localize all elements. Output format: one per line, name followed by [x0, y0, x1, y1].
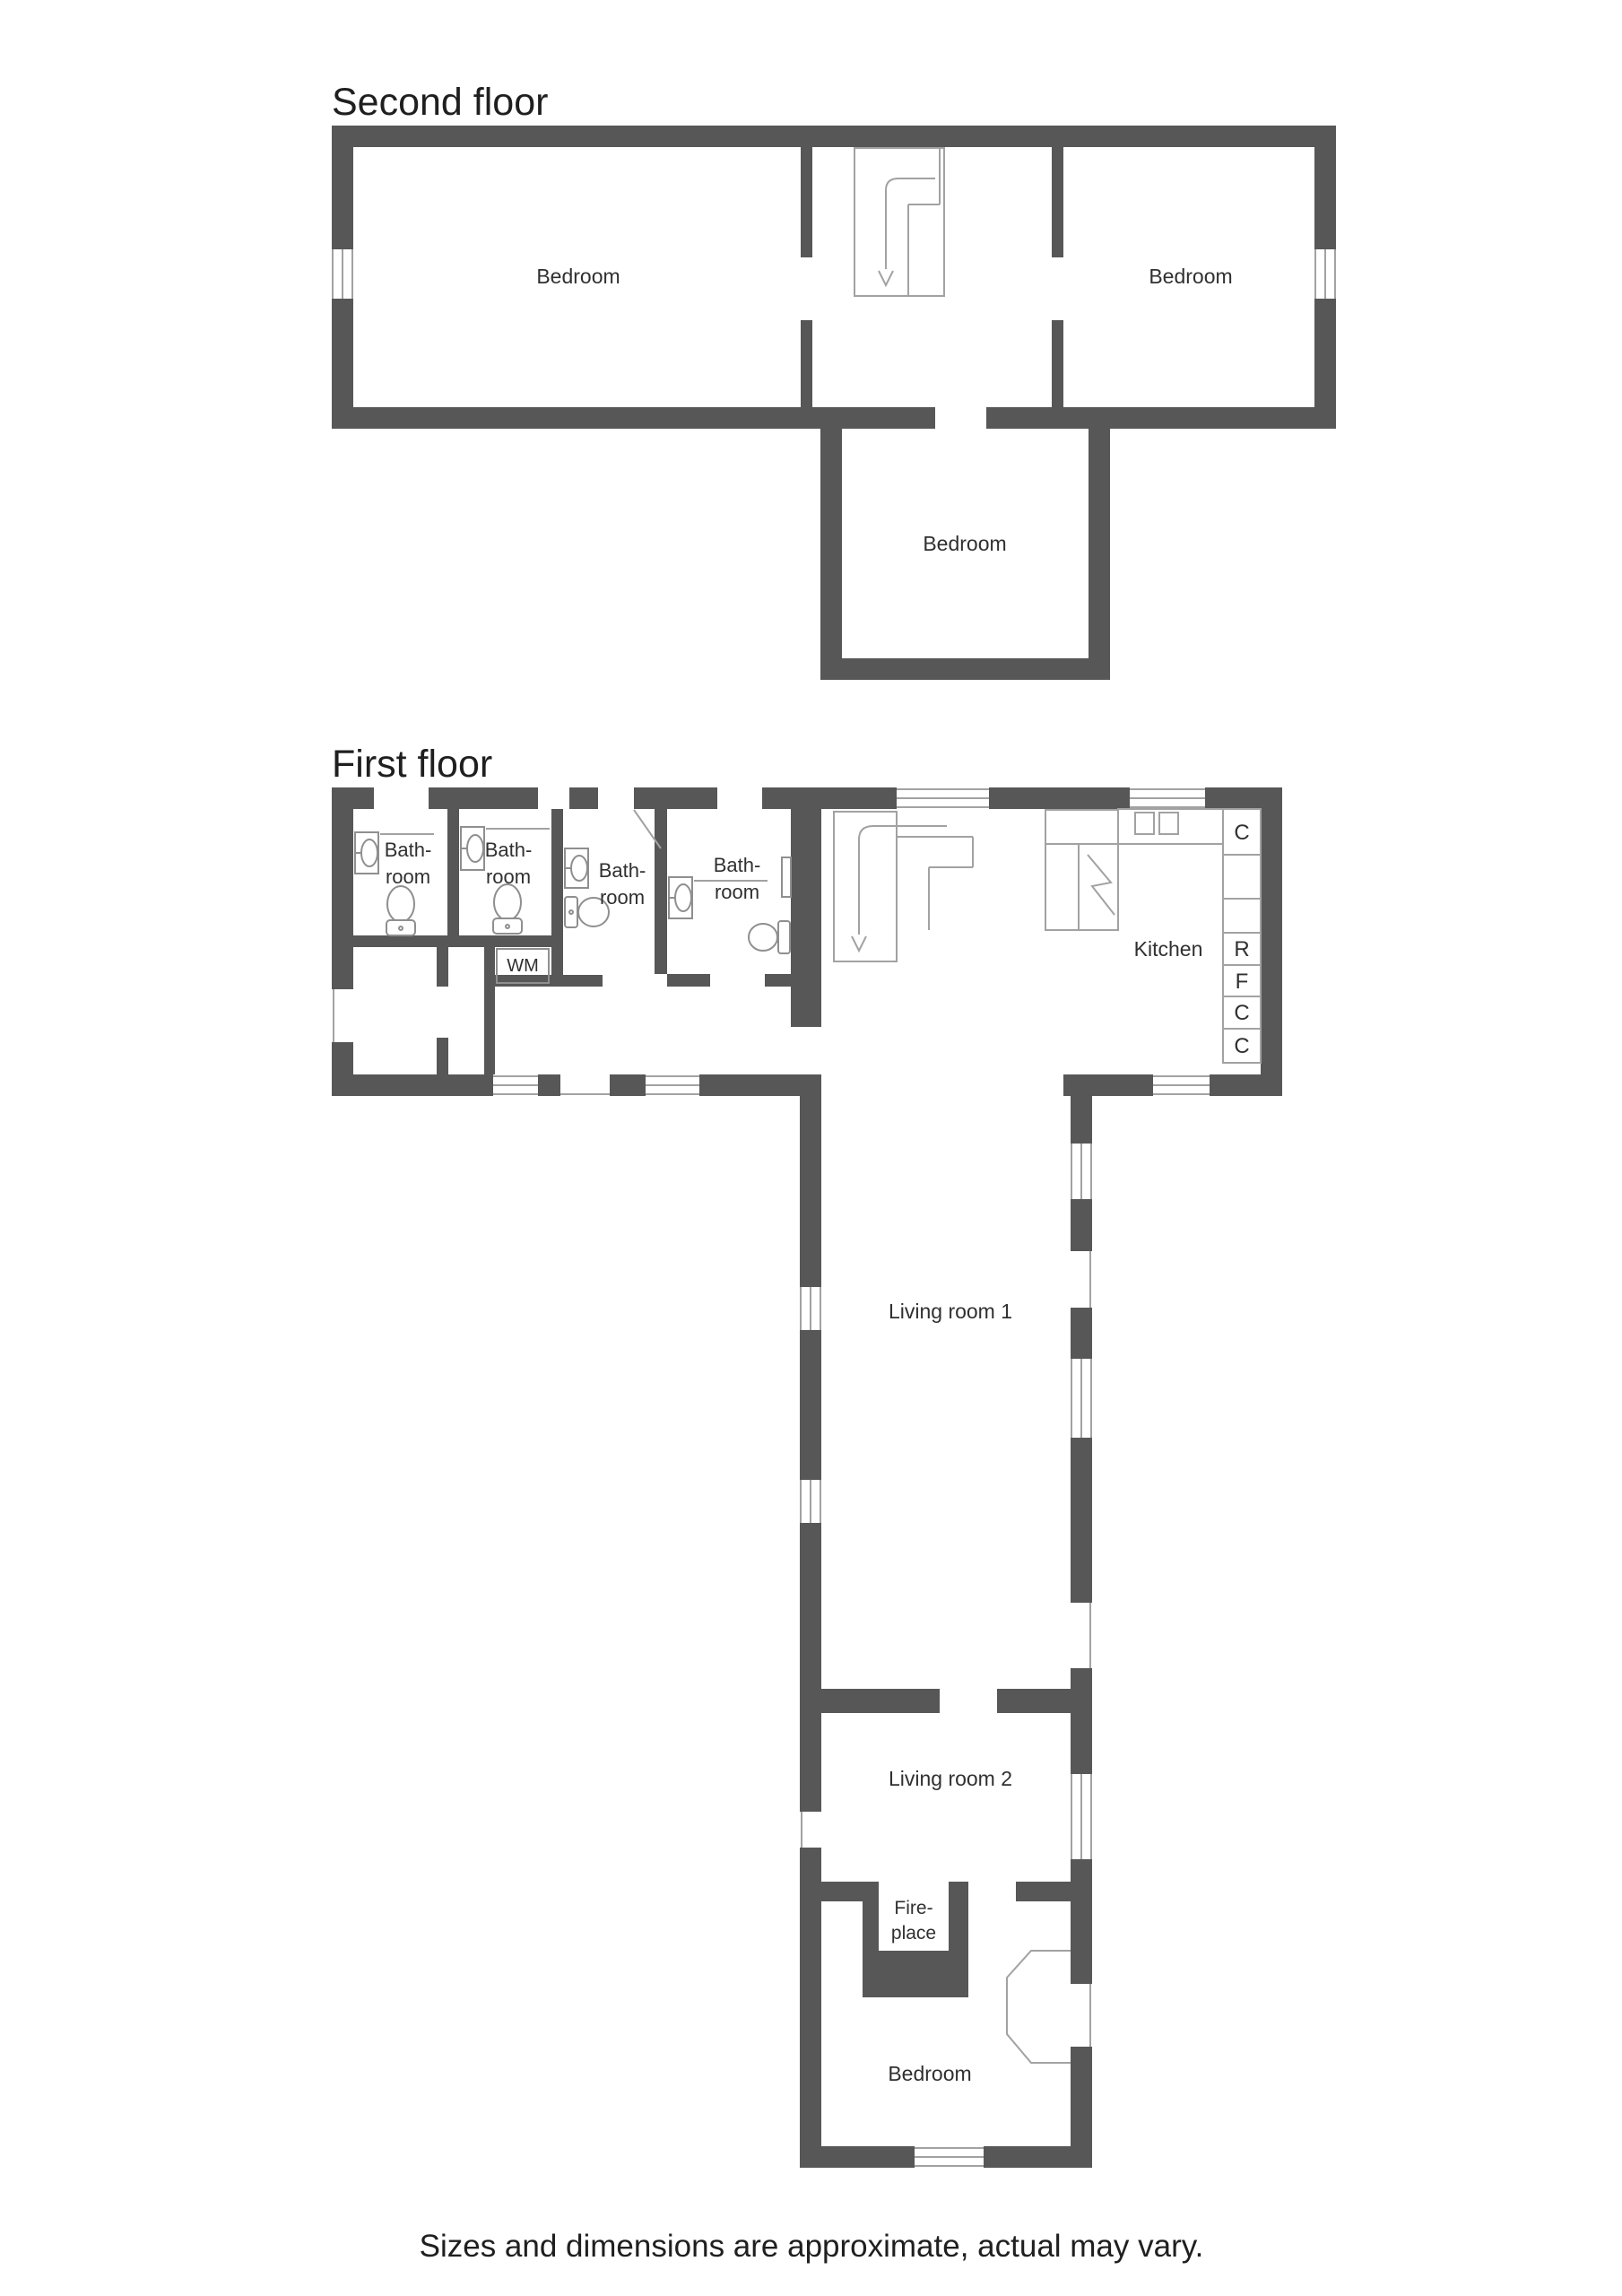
winrect: [333, 989, 352, 1042]
wall: [655, 809, 667, 974]
wall: [800, 1074, 821, 1287]
window-bottom-b: [646, 1075, 699, 1095]
wall: [667, 974, 710, 987]
toilet-icon: [387, 886, 414, 922]
window-living1-right-a: [1071, 1144, 1092, 1199]
tl: [1223, 899, 1261, 933]
room-label-bathroom-2: room: [486, 865, 531, 888]
room-label-bathroom-1: Bath-: [385, 839, 432, 861]
wall: [1052, 320, 1063, 407]
wall: [1071, 1859, 1092, 1984]
winrect: [1071, 1984, 1091, 2047]
label-fireplace: Fire-: [894, 1898, 932, 1918]
hob-burner-icon: [1135, 813, 1154, 834]
kitchen-fittings: C R F C C: [1045, 809, 1261, 1063]
wall: [332, 1074, 493, 1096]
wall: [332, 126, 1336, 147]
wall: [610, 1074, 646, 1096]
tl: [886, 178, 935, 269]
wall: [989, 787, 1130, 809]
opening-living1-right-a: [1071, 1251, 1091, 1308]
wall: [1071, 1199, 1092, 1251]
first-floor-walls: [332, 787, 1282, 2168]
wall: [1052, 147, 1063, 257]
wall: [634, 787, 717, 809]
stairs-icon-first-floor: [834, 812, 973, 961]
kitchen-unit: [1045, 810, 1118, 930]
wall: [801, 320, 812, 407]
window-living1-left-a: [800, 1287, 821, 1330]
room-label-bathroom-2: Bath-: [485, 839, 533, 861]
winrect: [1071, 1603, 1091, 1668]
tiled-stove-bay: [1007, 1951, 1071, 2063]
wall: [332, 407, 935, 429]
toilet-icon: [565, 897, 577, 927]
appliance-letter-freezer: F: [1236, 970, 1249, 994]
tl: [879, 271, 893, 285]
wall: [447, 809, 459, 935]
floor-plan-page: Second floor Bedroom Bedroom: [0, 0, 1622, 2296]
wall: [765, 974, 791, 987]
room-label-living-room-2: Living room 2: [889, 1767, 1012, 1790]
wall: [332, 787, 374, 809]
opening-living2-left: [801, 1812, 820, 1848]
wall: [984, 2146, 1092, 2168]
room-label-bathroom-4: Bath-: [714, 854, 761, 876]
room-label-living-room-1: Living room 1: [889, 1300, 1012, 1323]
room-label-bedroom-first-floor: Bedroom: [888, 2062, 971, 2085]
room-label-kitchen: Kitchen: [1134, 937, 1203, 961]
wall: [1071, 1308, 1092, 1359]
label-fireplace: place: [891, 1923, 936, 1944]
room-label-bedroom-left: Bedroom: [536, 265, 620, 288]
wall: [484, 947, 495, 1074]
wall: [332, 147, 353, 249]
appliance-letter-refrigerator: R: [1234, 937, 1249, 961]
window-living1-left-b: [800, 1480, 821, 1523]
wall: [821, 1882, 863, 1901]
wall: [800, 1848, 821, 2146]
label-washing-machine: WM: [507, 956, 539, 976]
toilet-icon: [778, 921, 790, 953]
wall: [820, 658, 1110, 680]
bath-icon: [782, 857, 791, 897]
wall: [437, 1038, 448, 1074]
room-label-bathroom-4: room: [715, 881, 759, 903]
winrect: [801, 1812, 820, 1848]
fx: [386, 920, 415, 935]
window-bedroom-bottom: [915, 2147, 984, 2167]
wall: [1071, 1668, 1092, 1774]
second-floor-window-left: [332, 249, 353, 299]
room-label-bedroom-right: Bedroom: [1149, 265, 1232, 288]
wall: [1063, 1074, 1153, 1096]
wall: [800, 2146, 915, 2168]
toilet-icon: [494, 884, 521, 920]
wall: [1016, 1882, 1071, 1901]
kitchen-counter: [1118, 809, 1223, 844]
wall: [551, 809, 563, 935]
wall: [1089, 429, 1110, 658]
window-living2-right: [1071, 1774, 1092, 1859]
fx: [749, 924, 777, 951]
appliance-letter-cupboard: C: [1234, 1034, 1249, 1058]
wall: [820, 429, 842, 658]
window-stair-hall: [897, 788, 989, 808]
window-bottom-a: [493, 1075, 538, 1095]
wall: [353, 935, 563, 947]
window-living1-right-b: [1071, 1359, 1092, 1438]
fx: [493, 918, 522, 934]
first-floor-title: First floor: [332, 743, 492, 786]
room-label-bedroom-lower: Bedroom: [923, 532, 1006, 555]
opening-bottom: [560, 1075, 610, 1095]
entrance-opening-left: [333, 989, 352, 1042]
tl: [859, 826, 947, 935]
wall: [1071, 1096, 1092, 1144]
tl: [852, 936, 866, 951]
wall: [800, 1523, 821, 1812]
tl: [1007, 1951, 1071, 2063]
opening-bedroom-right: [1071, 1984, 1091, 2047]
tl: [1223, 855, 1261, 899]
second-floor-walls: [332, 126, 1336, 680]
wall: [1071, 1438, 1092, 1603]
wall: [997, 1689, 1071, 1713]
window-kitchen-bottom: [1153, 1075, 1210, 1095]
wall: [538, 1074, 560, 1096]
floor-plan-drawing: Second floor Bedroom Bedroom: [0, 0, 1622, 2296]
wall: [986, 407, 1336, 429]
wall: [1314, 147, 1336, 249]
room-label-bathroom-1: room: [386, 865, 430, 888]
wall: [1314, 299, 1336, 407]
tl: [854, 148, 944, 296]
wall: [1071, 2047, 1092, 2146]
disclaimer-text: Sizes and dimensions are approximate, ac…: [420, 2229, 1204, 2264]
wall: [332, 299, 353, 407]
wall: [1261, 809, 1282, 1096]
opening-living1-right-b: [1071, 1603, 1091, 1668]
appliance-letter-cupboard: C: [1234, 821, 1249, 845]
room-label-bathroom-3: room: [600, 886, 645, 909]
wall: [429, 787, 538, 809]
appliance-letter-cupboard: C: [1234, 1001, 1249, 1025]
room-label-bathroom-3: Bath-: [599, 859, 646, 882]
wall: [1205, 787, 1282, 809]
stairs-icon-second-floor: [854, 148, 944, 296]
wall: [762, 787, 897, 809]
wall: [800, 1330, 821, 1480]
second-floor-title: Second floor: [332, 81, 548, 124]
wall: [863, 1951, 968, 1997]
wall: [437, 947, 448, 987]
wall: [791, 809, 821, 1027]
wall: [801, 147, 812, 257]
wall: [332, 809, 353, 989]
wall: [821, 1689, 940, 1713]
hob-burner-icon: [1159, 813, 1178, 834]
window-kitchen-top: [1130, 788, 1205, 808]
wall: [569, 787, 598, 809]
winrect: [1071, 1251, 1091, 1308]
appliance-column: C R F C C: [1223, 809, 1261, 1063]
winrect: [560, 1075, 610, 1095]
stove-icon: [1088, 855, 1115, 915]
wall: [1210, 1074, 1282, 1096]
second-floor-window-right: [1314, 249, 1336, 299]
